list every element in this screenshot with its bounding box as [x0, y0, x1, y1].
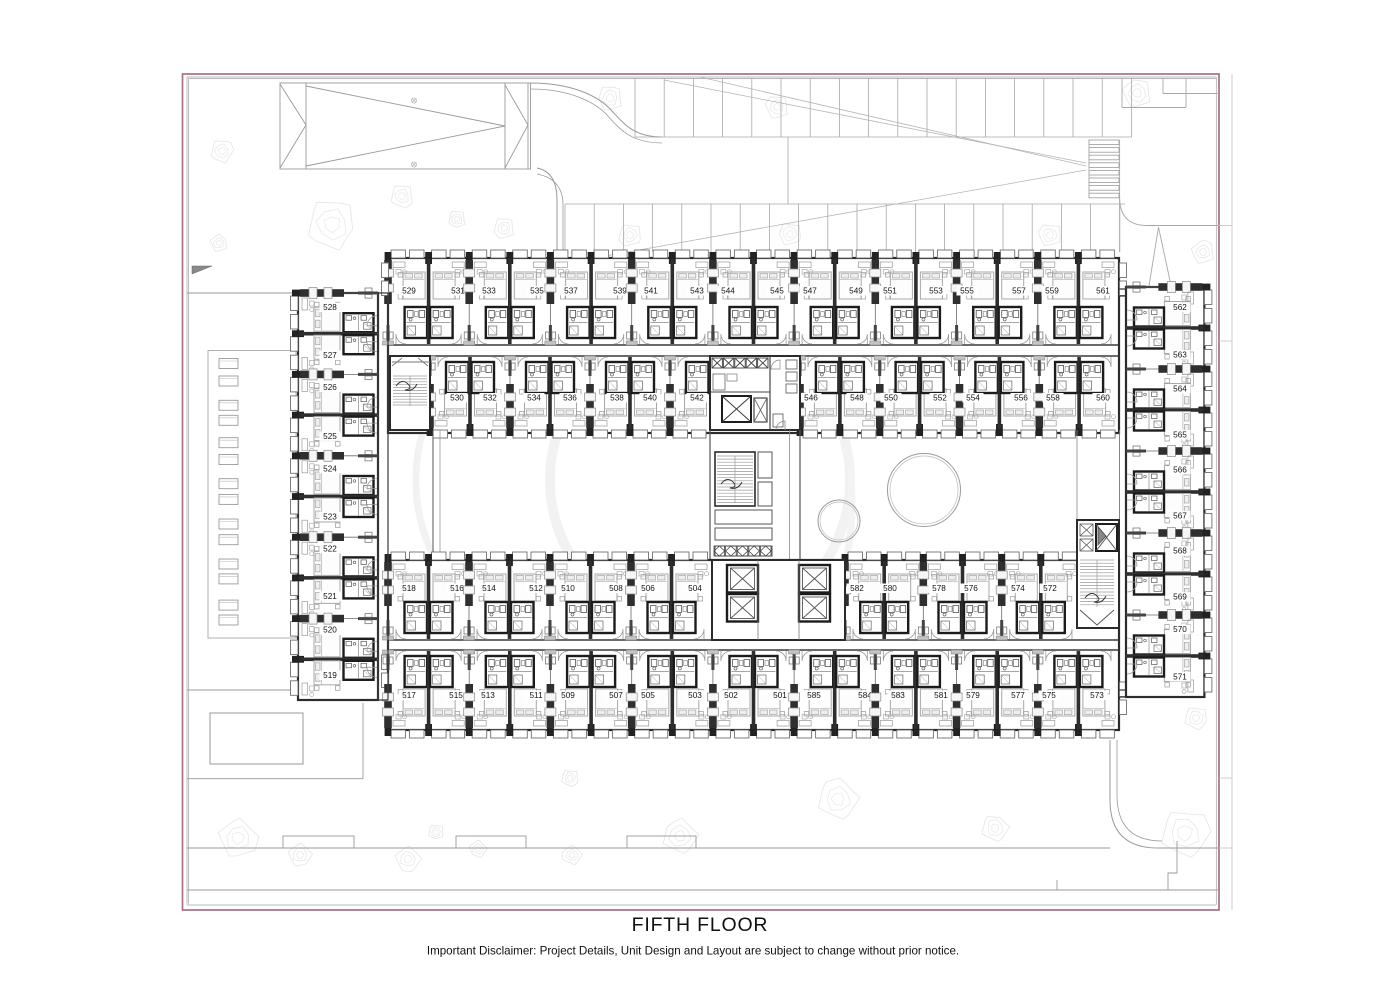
svg-text:526: 526 [323, 383, 337, 392]
svg-text:527: 527 [323, 351, 337, 360]
svg-text:551: 551 [883, 287, 897, 296]
svg-text:528: 528 [323, 303, 337, 312]
svg-text:563: 563 [1173, 351, 1187, 360]
svg-text:550: 550 [884, 394, 898, 403]
svg-text:555: 555 [960, 287, 974, 296]
svg-text:535: 535 [530, 287, 544, 296]
svg-text:530: 530 [450, 394, 464, 403]
svg-text:513: 513 [481, 691, 495, 700]
svg-text:529: 529 [402, 287, 416, 296]
svg-text:504: 504 [688, 584, 702, 593]
svg-text:552: 552 [933, 394, 947, 403]
svg-text:566: 566 [1173, 465, 1187, 474]
svg-text:522: 522 [323, 544, 337, 553]
svg-text:515: 515 [449, 691, 463, 700]
svg-text:572: 572 [1043, 584, 1057, 593]
svg-text:559: 559 [1045, 287, 1059, 296]
svg-text:544: 544 [721, 287, 735, 296]
svg-text:517: 517 [402, 691, 416, 700]
svg-text:525: 525 [323, 432, 337, 441]
svg-text:502: 502 [724, 691, 738, 700]
svg-text:579: 579 [966, 691, 980, 700]
svg-text:560: 560 [1096, 394, 1110, 403]
svg-text:574: 574 [1011, 584, 1025, 593]
svg-text:519: 519 [323, 671, 337, 680]
svg-text:556: 556 [1014, 394, 1028, 403]
svg-text:562: 562 [1173, 303, 1187, 312]
svg-text:510: 510 [561, 584, 575, 593]
svg-text:543: 543 [690, 287, 704, 296]
svg-text:536: 536 [563, 394, 577, 403]
svg-text:567: 567 [1173, 511, 1187, 520]
svg-text:585: 585 [807, 691, 821, 700]
svg-text:539: 539 [613, 287, 627, 296]
svg-text:570: 570 [1173, 625, 1187, 634]
svg-text:524: 524 [323, 464, 337, 473]
svg-text:580: 580 [883, 584, 897, 593]
svg-text:534: 534 [527, 394, 541, 403]
svg-text:509: 509 [561, 691, 575, 700]
svg-text:506: 506 [641, 584, 655, 593]
svg-text:557: 557 [1012, 287, 1026, 296]
svg-text:546: 546 [804, 394, 818, 403]
svg-text:554: 554 [966, 394, 980, 403]
svg-text:523: 523 [323, 512, 337, 521]
svg-text:511: 511 [529, 691, 542, 700]
svg-text:564: 564 [1173, 385, 1187, 394]
svg-text:532: 532 [483, 394, 497, 403]
svg-text:537: 537 [564, 287, 578, 296]
svg-text:531: 531 [451, 287, 465, 296]
svg-text:553: 553 [929, 287, 943, 296]
svg-text:505: 505 [641, 691, 655, 700]
svg-text:568: 568 [1173, 547, 1187, 556]
svg-text:521: 521 [323, 592, 337, 601]
svg-text:508: 508 [609, 584, 623, 593]
svg-text:FIFTH FLOOR: FIFTH FLOOR [632, 914, 769, 936]
svg-text:569: 569 [1173, 593, 1187, 602]
svg-text:558: 558 [1046, 394, 1060, 403]
svg-text:578: 578 [932, 584, 946, 593]
svg-text:541: 541 [644, 287, 658, 296]
svg-text:582: 582 [850, 584, 864, 593]
svg-text:533: 533 [482, 287, 496, 296]
svg-text:516: 516 [450, 584, 464, 593]
svg-text:577: 577 [1011, 691, 1025, 700]
svg-text:565: 565 [1173, 431, 1187, 440]
svg-text:581: 581 [934, 691, 948, 700]
svg-text:501: 501 [773, 691, 787, 700]
svg-text:507: 507 [609, 691, 623, 700]
svg-text:548: 548 [850, 394, 864, 403]
svg-text:573: 573 [1090, 691, 1104, 700]
svg-text:542: 542 [690, 394, 704, 403]
svg-text:549: 549 [849, 287, 863, 296]
svg-text:512: 512 [529, 584, 543, 593]
svg-text:547: 547 [803, 287, 817, 296]
svg-text:545: 545 [770, 287, 784, 296]
svg-text:503: 503 [688, 691, 702, 700]
svg-text:583: 583 [891, 691, 905, 700]
svg-text:520: 520 [323, 626, 337, 635]
svg-text:514: 514 [482, 584, 496, 593]
svg-text:Important Disclaimer: Project: Important Disclaimer: Project Details, U… [427, 945, 959, 958]
svg-text:518: 518 [402, 584, 416, 593]
svg-text:576: 576 [964, 584, 978, 593]
svg-text:538: 538 [610, 394, 624, 403]
svg-text:540: 540 [643, 394, 657, 403]
svg-text:561: 561 [1096, 287, 1110, 296]
svg-text:571: 571 [1173, 673, 1187, 682]
svg-text:575: 575 [1042, 691, 1056, 700]
